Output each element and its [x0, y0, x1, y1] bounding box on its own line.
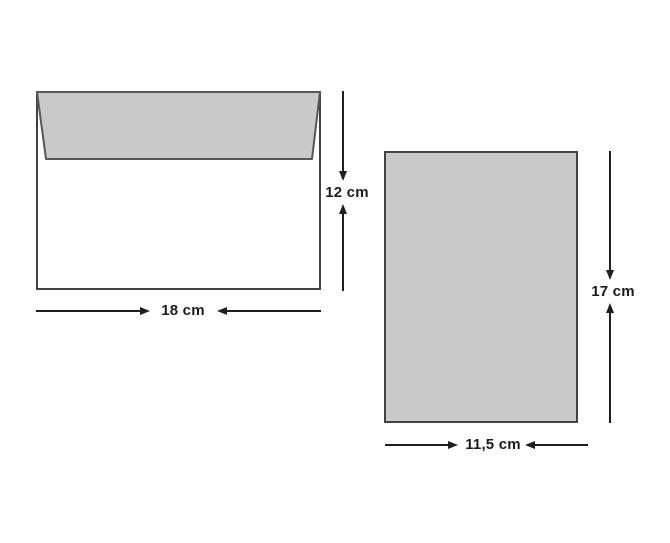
envelope-width-label: 18 cm	[150, 301, 216, 321]
card-height-label: 17 cm	[571, 282, 655, 302]
arrow-left-icon	[525, 441, 535, 449]
arrow-left-icon	[217, 307, 227, 315]
envelope-flap-polygon	[37, 92, 320, 159]
dimension-line-segment	[385, 444, 448, 446]
dimension-line-segment	[227, 310, 321, 312]
dimension-diagram: 12 cm 18 cm 17 cm 11,5 cm	[0, 0, 670, 543]
arrow-up-icon	[339, 204, 347, 214]
arrow-down-icon	[606, 270, 614, 280]
dimension-line-segment	[342, 214, 344, 291]
dimension-line-segment	[535, 444, 588, 446]
dimension-line-segment	[609, 313, 611, 423]
dimension-line-segment	[609, 151, 611, 270]
arrow-up-icon	[606, 303, 614, 313]
dimension-line-segment	[342, 91, 344, 172]
card-shape	[384, 151, 578, 423]
dimension-line-segment	[36, 310, 140, 312]
arrow-right-icon	[140, 307, 150, 315]
envelope-height-label: 12 cm	[305, 183, 389, 203]
card-width-label: 11,5 cm	[452, 435, 534, 455]
envelope-flap-shape	[36, 91, 321, 161]
arrow-down-icon	[339, 171, 347, 181]
